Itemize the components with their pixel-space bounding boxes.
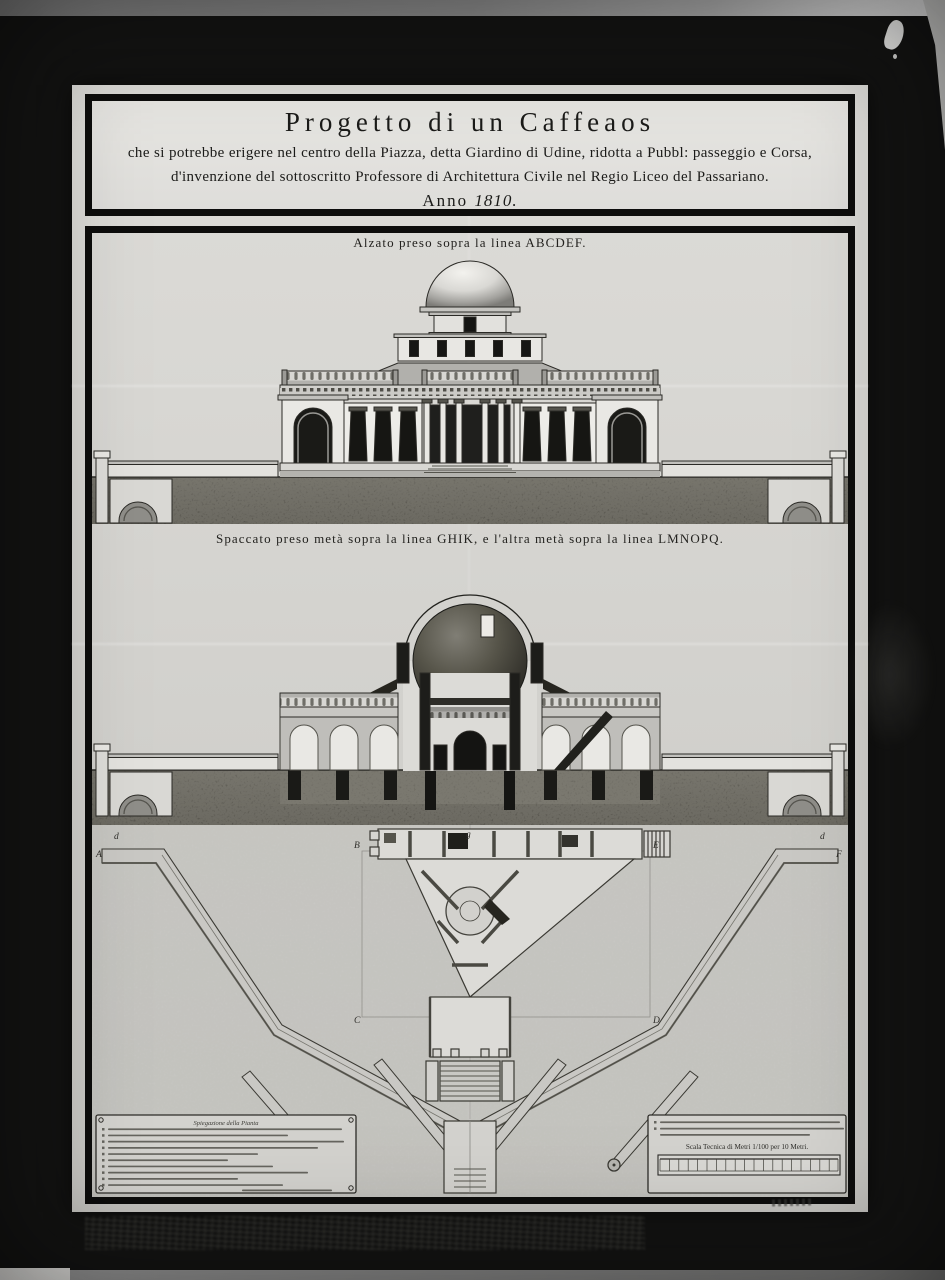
podium: [280, 463, 660, 471]
anno-label: Anno: [422, 191, 468, 210]
photo-top-edge-strip: [0, 0, 945, 16]
drawing-title: Progetto di un Caffeaos: [92, 107, 848, 138]
mount-light-patch: [845, 600, 935, 750]
section-drawing: [92, 555, 848, 825]
plan-letter-C: C: [354, 1016, 361, 1026]
plan-letter-A: A: [95, 850, 102, 860]
cut-wall: [510, 673, 520, 770]
plan-letter-D: D: [652, 1016, 660, 1026]
elevation-building: [278, 261, 662, 477]
title-block: Progetto di un Caffeaos che si potrebbe …: [85, 94, 855, 216]
portico-column: [433, 1049, 441, 1057]
graphic-scale-bar: [658, 1155, 840, 1175]
plan-letter-d: d: [114, 832, 119, 842]
drawing-sheet: Progetto di un Caffeaos che si potrebbe …: [72, 85, 868, 1212]
section-caption: Spaccato preso metà sopra la linea GHIK,…: [92, 531, 848, 547]
elevation-drawing: [92, 257, 848, 524]
plan-drawing: d A B g E F d C D Spiegazione della P: [92, 825, 848, 1197]
photo-bottom-left-sliver: [0, 1268, 70, 1280]
plan-letter-F: F: [835, 850, 842, 860]
scale-label: Scala Tecnica di Metri 1/100 per 10 Metr…: [686, 1143, 809, 1151]
photo-bottom-edge-strip: [70, 1270, 945, 1280]
balustrade: [282, 371, 398, 385]
stair-block: [448, 833, 468, 849]
right-wing: [518, 395, 662, 463]
plan-letter-d2: d: [820, 832, 825, 842]
legend-panel-right: Scala Tecnica di Metri 1/100 per 10 Metr…: [648, 1115, 846, 1193]
lantern-opening: [481, 615, 494, 637]
photo-of-architectural-drawing: Progetto di un Caffeaos che si potrebbe …: [0, 0, 945, 1280]
central-pier: [444, 1121, 496, 1193]
cut-wall: [420, 673, 430, 770]
plan-letter-g: g: [466, 830, 471, 840]
title-year-line: Anno 1810.: [92, 191, 848, 211]
legend-heading: Spiegazione della Pianta: [194, 1120, 259, 1127]
rotunda-plan: [446, 887, 494, 935]
portico: [422, 399, 522, 463]
photo-corner-highlight: [923, 0, 945, 150]
title-subtitle-2: d'invenzione del sottoscritto Professore…: [92, 169, 848, 186]
mount-texture: [85, 1216, 645, 1250]
left-wing: [278, 395, 422, 463]
title-subtitle-1: che si potrebbe erigere nel centro della…: [92, 145, 848, 162]
plan-letter-B: B: [354, 841, 360, 851]
elevation-caption: Alzato preso sopra la linea ABCDEF.: [92, 235, 848, 251]
legend-panel-left: Spiegazione della Pianta: [96, 1115, 356, 1193]
plan-letter-E: E: [652, 841, 659, 851]
signature-mark: [772, 1198, 814, 1206]
section-building: [280, 595, 660, 771]
dome: [426, 261, 514, 307]
anno-year: 1810.: [474, 191, 517, 210]
photo-flaw-speck: [893, 54, 897, 59]
drawing-main-frame: Alzato preso sopra la linea ABCDEF.: [85, 226, 855, 1204]
photo-flaw-mark: [882, 18, 907, 52]
